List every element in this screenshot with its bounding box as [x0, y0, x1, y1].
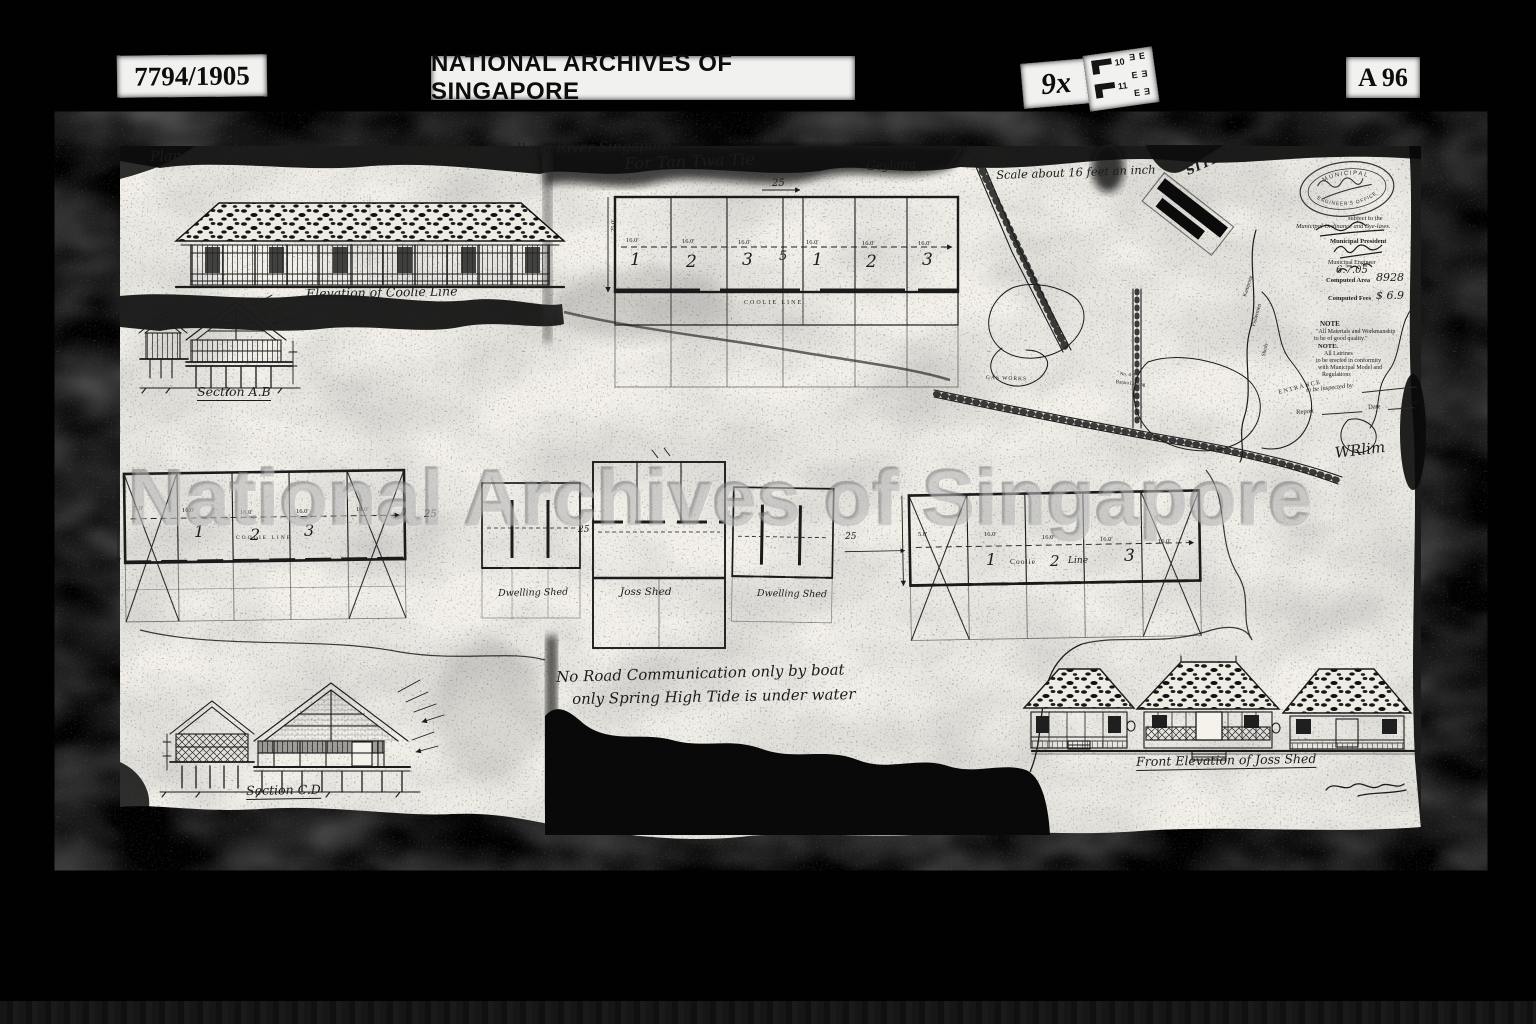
blank-line	[1388, 407, 1414, 410]
approval-ordinance: Municipal Ordinance and Bye-laws.	[1296, 224, 1390, 231]
bay-dim: 16.0'	[862, 241, 875, 248]
joss-elevation-caption: Front Elevation of Joss Shed	[1136, 753, 1317, 771]
blank-line	[1322, 411, 1362, 415]
top-plan-row-label: COOLIE LINE	[744, 300, 803, 306]
magnification-label: 9x	[1020, 58, 1092, 109]
site-label: SITE	[1184, 151, 1222, 177]
coolie-elevation-caption: Elevation of Coolie Line	[306, 285, 458, 300]
access-note-line2: only Spring High Tide is under water	[572, 687, 856, 707]
archive-watermark: National Archives of Singapore	[128, 452, 1312, 543]
reference-code-label: A 96	[1346, 57, 1420, 98]
top-plan-center-dim: 5	[779, 250, 787, 263]
blank-line	[1362, 386, 1417, 393]
scale-note: Scale about 16 feet an inch	[996, 164, 1156, 181]
surveyor-signature: WRlim	[1334, 440, 1386, 461]
bay-number: 1	[630, 252, 641, 269]
gas-works-label: GAS WORKS	[986, 376, 1027, 383]
test-letter: E	[1134, 89, 1141, 99]
joss-shed-label: Joss Shed	[620, 587, 672, 598]
approval-date: 6.7.05	[1336, 266, 1368, 276]
note2-line: to be erected in conformity	[1316, 358, 1381, 364]
archive-name-label: NATIONAL ARCHIVES OF SINGAPORE	[431, 56, 855, 100]
test-letter: E	[1129, 53, 1136, 63]
top-plan-dedication: For Tan Twa Tie	[624, 151, 755, 172]
approval-subject: subject to the	[1348, 216, 1383, 223]
microfilm-scan: MUNICIPAL ENGINEER'S OFFICE	[0, 0, 1536, 1024]
area-label: Geylang	[866, 158, 916, 172]
section-ab-caption: Section A.B	[197, 386, 271, 401]
bay-number: 3	[922, 252, 933, 269]
bank-label: Fishermen	[1252, 304, 1263, 328]
bracket-glyph	[1091, 58, 1113, 75]
note2-line: Regulations	[1322, 372, 1351, 378]
resolution-number: 11	[1117, 80, 1128, 91]
report-label: Report	[1296, 409, 1314, 417]
row-word: Coolie	[1010, 558, 1036, 566]
asst-label: Asst	[1408, 399, 1419, 406]
note1-title: NOTE	[1320, 321, 1340, 328]
test-letter: E	[1141, 69, 1148, 79]
resolution-number: 10	[1114, 56, 1125, 67]
bay-number: 1	[812, 252, 823, 269]
bank-label: Sheds	[1262, 343, 1270, 357]
bay-dim: 16.0'	[738, 240, 751, 247]
computed-fees-label: Computed Fees	[1328, 296, 1371, 303]
bay-dim: 16.0'	[682, 239, 695, 246]
dwelling-shed-2-label: Dwelling Shed	[757, 589, 827, 600]
bay-dim: 16.0'	[918, 241, 931, 248]
computed-fees-value: $ 6.9	[1376, 290, 1404, 301]
note2-title: NOTE.	[1318, 344, 1338, 351]
resolution-test-icon: 10 11 E E E E E E	[1082, 46, 1159, 111]
bracket-glyph	[1095, 82, 1117, 99]
note1-line: to be of good quality."	[1314, 336, 1368, 342]
test-letter: E	[1138, 51, 1145, 61]
bank-label: Kampong	[1243, 275, 1255, 297]
bay-number: 2	[686, 254, 697, 271]
catalog-number-label: 7794/1905	[117, 54, 267, 98]
approval-president: Municipal President	[1330, 239, 1386, 246]
note2-line: with Municipal Model and	[1318, 365, 1382, 371]
note2-line: All Latrines	[1324, 351, 1353, 357]
bay-dim: 16.0'	[806, 240, 819, 247]
dwelling-shed-1-label: Dwelling Shed	[498, 588, 568, 599]
bay-number: 3	[1124, 548, 1135, 565]
bay-number: 1	[986, 552, 996, 568]
note1-line: "All Materials and Workmanship	[1316, 329, 1395, 335]
bay-number: 2	[866, 254, 877, 271]
top-plan-depth-dim: 25.0'	[611, 219, 618, 232]
drawing-title: Plan of Fishermen Sheds proposed to be b…	[150, 139, 671, 164]
computed-area-value: 8928	[1376, 272, 1404, 283]
date-label: Date	[1368, 404, 1381, 411]
top-plan-width-dim: 25	[772, 179, 785, 189]
test-letter: E	[1143, 87, 1150, 97]
computed-area-label: Computed Area	[1326, 278, 1370, 285]
bay-number: 3	[742, 252, 753, 269]
row-word: Line	[1068, 557, 1088, 566]
bay-dim: 16.0'	[626, 238, 639, 245]
road-label-line2: Batara Lagung	[1115, 380, 1145, 388]
bay-number: 2	[1050, 554, 1060, 569]
section-cd-caption: Section C.D	[246, 784, 321, 800]
test-letter: E	[1131, 71, 1138, 81]
road-label-line1: No. 4 B	[1119, 372, 1135, 379]
access-note-line1: No Road Communication only by boat	[556, 662, 845, 685]
